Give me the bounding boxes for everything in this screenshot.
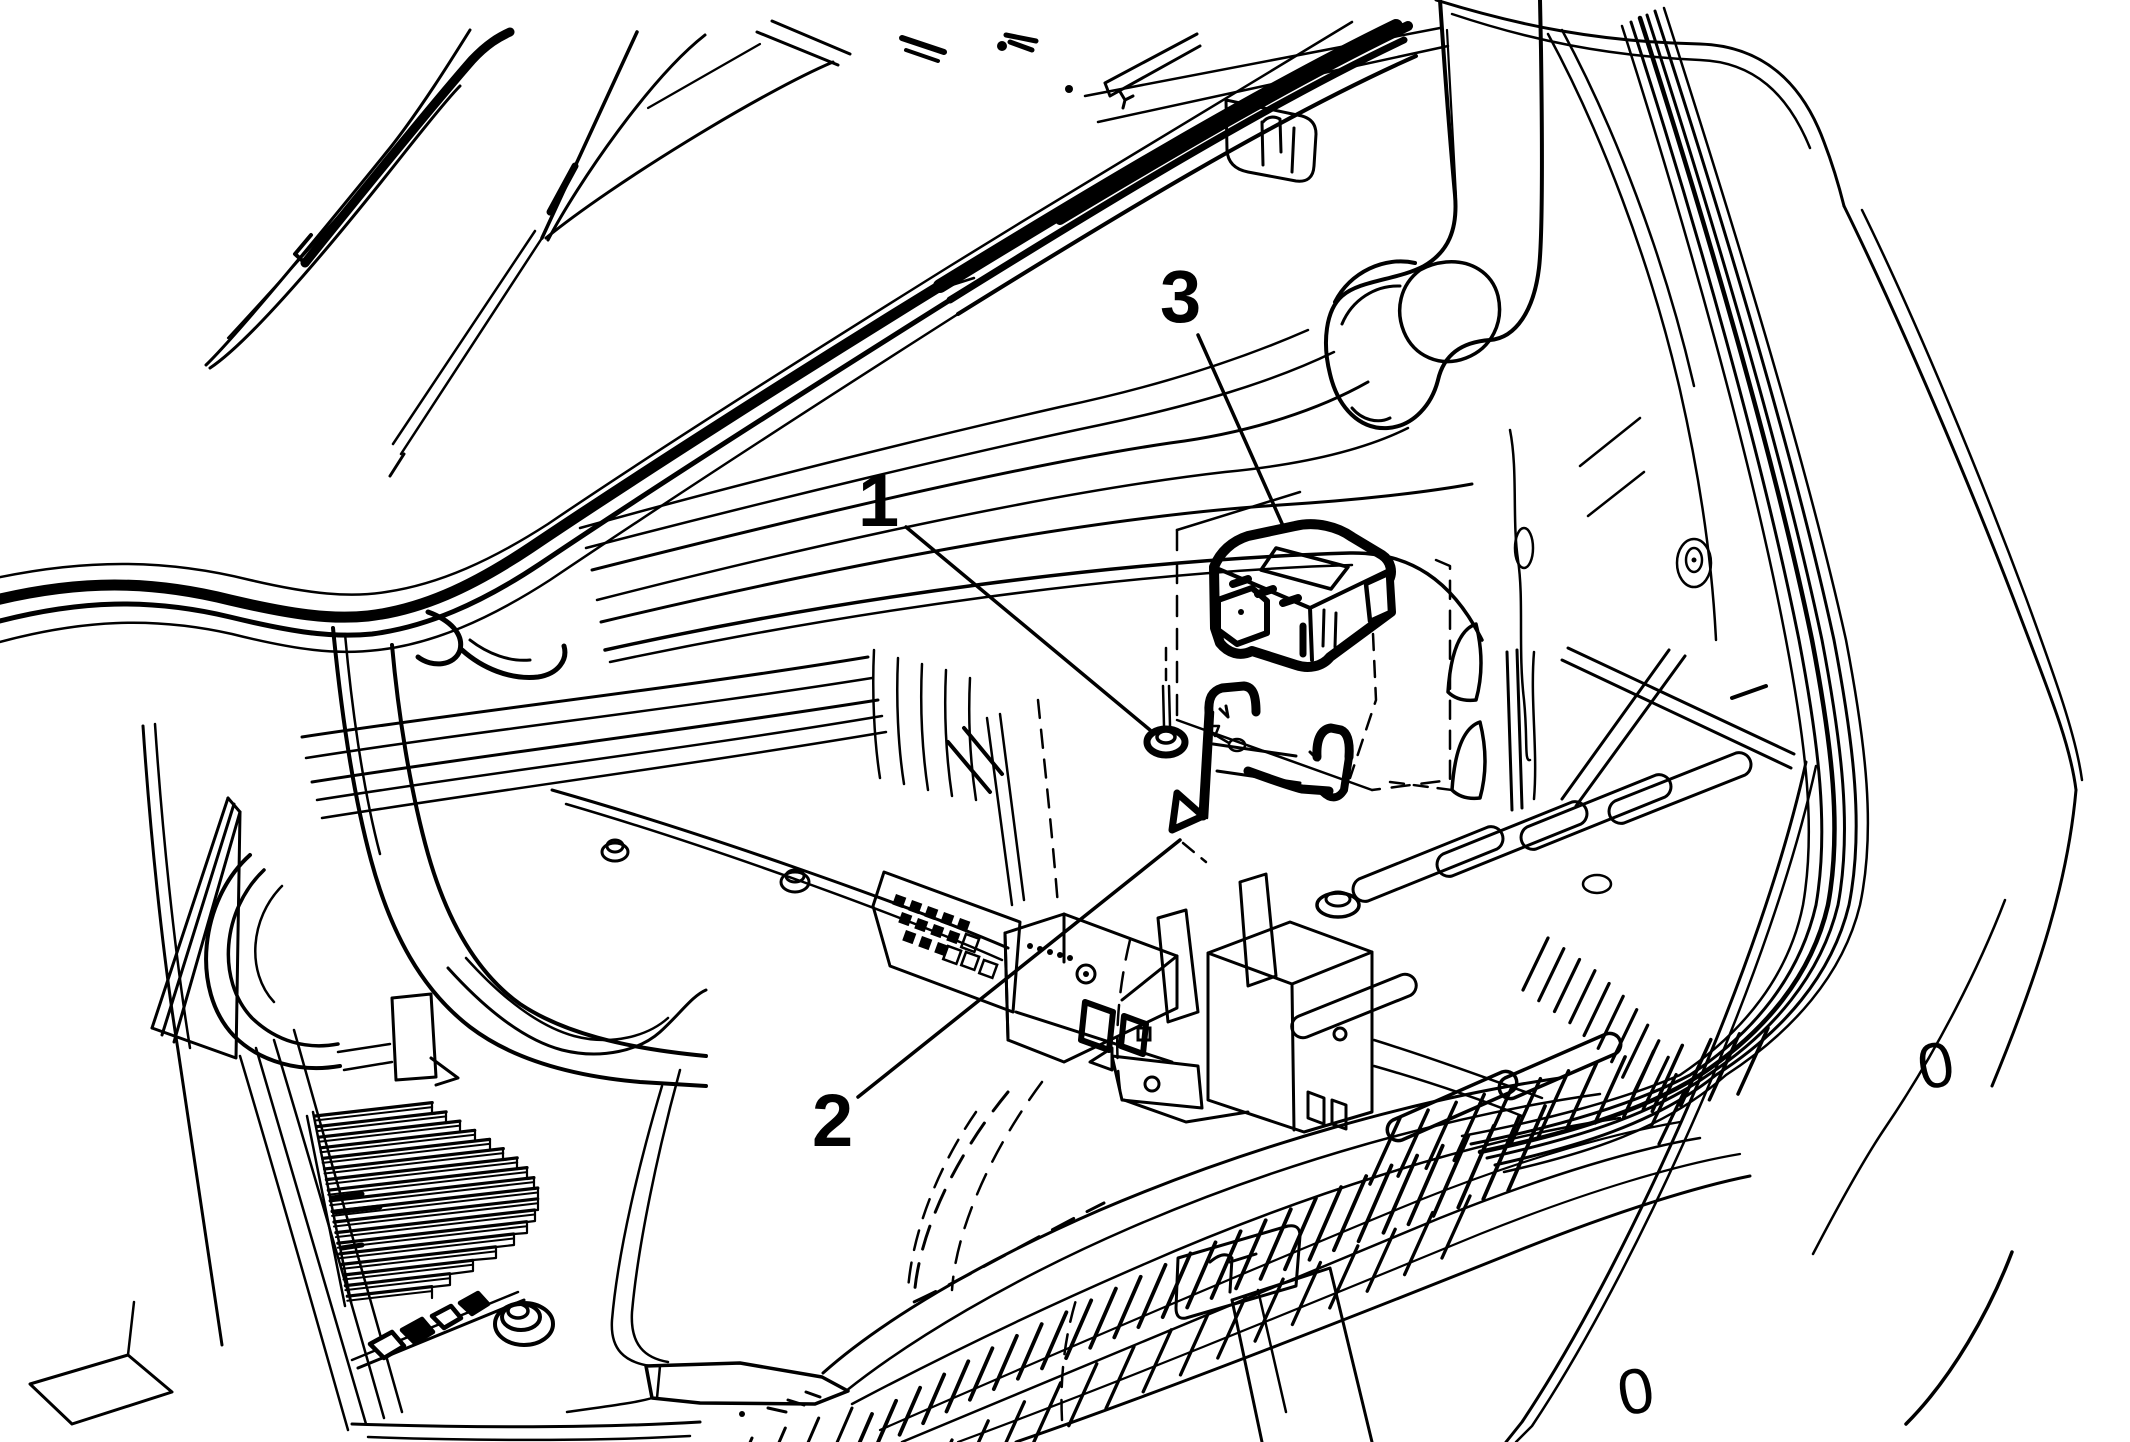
svg-text:1: 1: [858, 459, 899, 542]
svg-text:3: 3: [1160, 255, 1201, 338]
svg-text:2: 2: [812, 1079, 853, 1162]
